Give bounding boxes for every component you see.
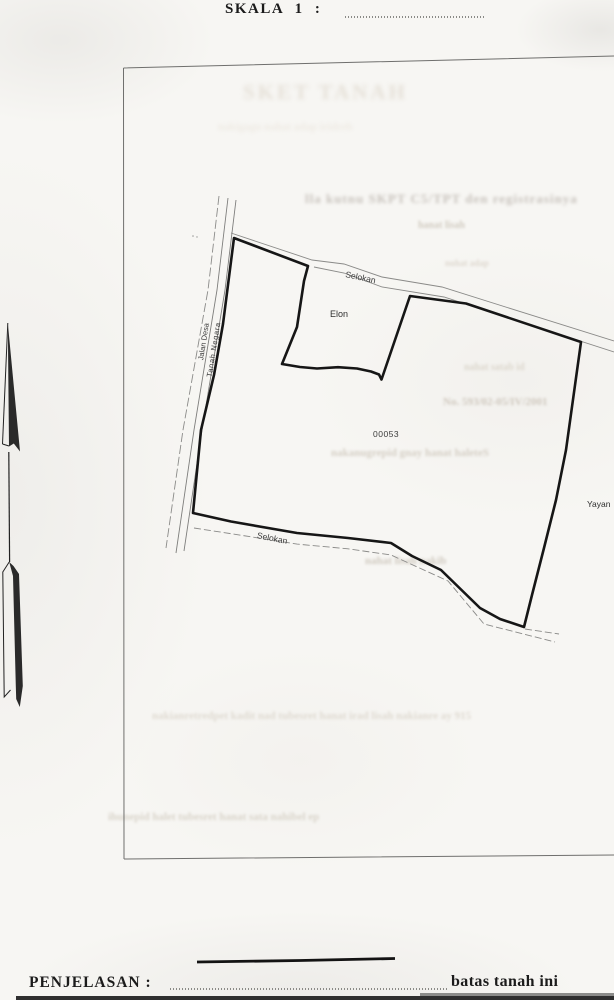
svg-text:Selokan: Selokan [256,530,288,546]
svg-text:Selokan: Selokan [345,269,377,285]
svg-text:00053: 00053 [373,429,399,439]
svg-text:Yayan: Yayan [587,499,611,509]
svg-text:Elon: Elon [330,309,348,319]
